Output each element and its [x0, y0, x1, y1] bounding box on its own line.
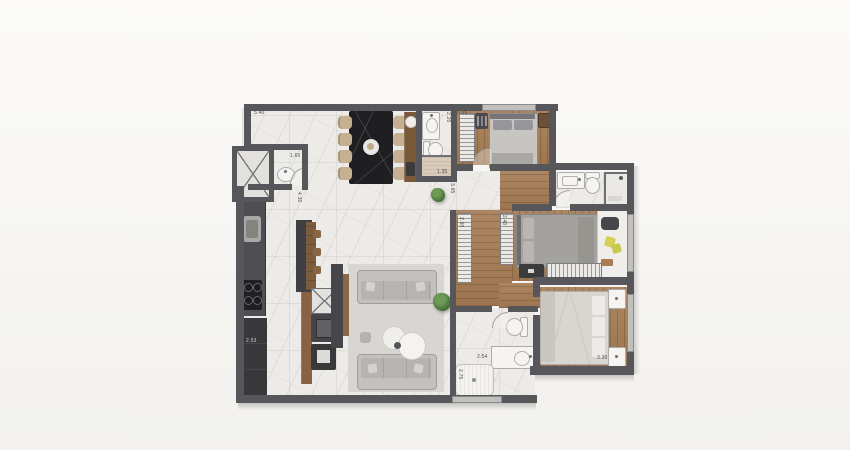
headboard	[490, 114, 535, 119]
hanger-icon	[477, 116, 479, 126]
table-centerpiece	[363, 139, 379, 155]
sofa-cushion	[415, 281, 425, 291]
wall	[530, 366, 634, 375]
nightstand	[608, 289, 626, 309]
window	[452, 396, 502, 403]
dining-chair	[338, 167, 352, 180]
dimension-label: 3.15	[457, 110, 468, 116]
knob-icon	[615, 297, 618, 300]
window	[482, 104, 536, 111]
dining-chair	[338, 133, 352, 146]
bath3-toilet-bowl	[506, 318, 523, 336]
wall	[570, 204, 634, 211]
bed-pillow	[592, 317, 605, 336]
wall	[512, 204, 552, 211]
sofa-cushion	[413, 363, 424, 374]
plant-icon	[431, 188, 445, 202]
tv-panel	[331, 264, 343, 348]
faucet-icon	[578, 178, 581, 181]
wall	[236, 186, 244, 403]
dimension-label: 1.65	[290, 153, 301, 159]
sofa-cushion	[367, 363, 377, 373]
hanger-icon	[485, 116, 487, 126]
dimension-label: 5.40	[254, 110, 265, 116]
desk-books	[601, 259, 613, 266]
centerpiece-bowl	[367, 143, 374, 150]
wall	[490, 164, 556, 171]
bath1-vanity	[422, 112, 440, 140]
coffee-table	[398, 332, 426, 360]
bedroom2-bed	[540, 291, 609, 365]
wall	[416, 176, 456, 182]
bath2-toilet-bowl	[585, 177, 600, 194]
floor-hall-marble	[456, 171, 500, 210]
dimension-label: 4.30	[296, 192, 302, 203]
bar-stool	[313, 266, 321, 274]
bedroom1-bed	[489, 113, 538, 169]
wall	[549, 104, 556, 170]
burner-icon	[244, 283, 253, 292]
shower-bench	[608, 196, 622, 201]
wall	[508, 306, 538, 312]
faucet-icon	[529, 355, 532, 358]
kitchen-sink-basin	[246, 220, 258, 238]
dimension-label: 3.30	[597, 355, 608, 361]
plant-icon	[433, 293, 451, 311]
bar-stool	[313, 230, 321, 238]
window	[627, 294, 634, 352]
wall	[244, 104, 251, 148]
burner-icon	[244, 296, 253, 305]
wall	[248, 184, 292, 190]
headboard	[517, 215, 521, 265]
wall	[533, 315, 540, 373]
burner-icon	[253, 296, 262, 305]
desk-chair	[601, 217, 619, 230]
pouf	[360, 332, 371, 343]
hanging-clothes	[475, 113, 488, 129]
bed-pillow	[514, 120, 533, 130]
bar-stool	[313, 248, 321, 256]
wall	[450, 306, 492, 312]
tv-console	[343, 274, 349, 336]
bed-pillow	[592, 296, 605, 315]
shadow-bottom	[238, 403, 536, 410]
wall	[416, 104, 422, 182]
bath1-shower-glass	[422, 155, 451, 157]
floor-plan: 5.401.654.302.203.151.353.652.902.402.53…	[0, 0, 850, 450]
dimension-label: 2.53	[246, 338, 257, 344]
bed-foot-throw	[578, 217, 594, 263]
knob-icon	[615, 355, 618, 358]
wall	[450, 210, 456, 396]
master-bed	[516, 214, 598, 268]
sofa-cushion	[365, 281, 375, 291]
dimension-label: 3.65	[449, 183, 455, 194]
nightstand	[608, 347, 626, 367]
wall	[451, 164, 473, 171]
bed-pillow	[523, 218, 534, 239]
bed-fold	[541, 292, 555, 362]
sideboard-vase	[406, 162, 415, 176]
dining-chair	[338, 116, 352, 129]
bedroom1-wardrobe	[459, 113, 475, 162]
shadow-right	[634, 166, 640, 374]
master-bench	[519, 264, 544, 278]
bed-pillow	[493, 120, 512, 130]
burner-icon	[253, 283, 262, 292]
bench-detail	[528, 269, 534, 273]
bed-pillow	[523, 241, 534, 262]
dimension-label: 2.90	[458, 217, 464, 228]
wall	[549, 168, 556, 206]
faucet-icon	[284, 170, 287, 173]
dining-chair	[338, 150, 352, 163]
bath1-sink-bowl	[426, 118, 438, 133]
dimension-label: 2.54	[477, 354, 488, 360]
dimension-label: 2.75	[457, 369, 463, 380]
kitchen-sink	[243, 216, 261, 242]
hanger-icon	[481, 116, 483, 126]
shadow-bottom-right	[532, 375, 634, 382]
faucet-icon	[430, 114, 433, 117]
wall	[549, 163, 634, 170]
wall	[302, 144, 308, 190]
bath2-sink	[562, 176, 578, 186]
wall	[248, 144, 308, 150]
shower-head-icon	[619, 176, 623, 180]
microwave-door	[317, 350, 330, 363]
wall	[536, 277, 634, 285]
bath3-sink-bowl	[514, 351, 530, 366]
drain-icon	[472, 378, 476, 382]
bath2-vanity	[557, 172, 585, 189]
dimension-label: 2.20	[445, 112, 451, 123]
side-table	[394, 342, 401, 349]
dimension-label: 2.40	[501, 215, 507, 226]
dimension-label: 1.35	[437, 169, 448, 175]
window	[627, 214, 634, 272]
wall	[533, 277, 540, 297]
